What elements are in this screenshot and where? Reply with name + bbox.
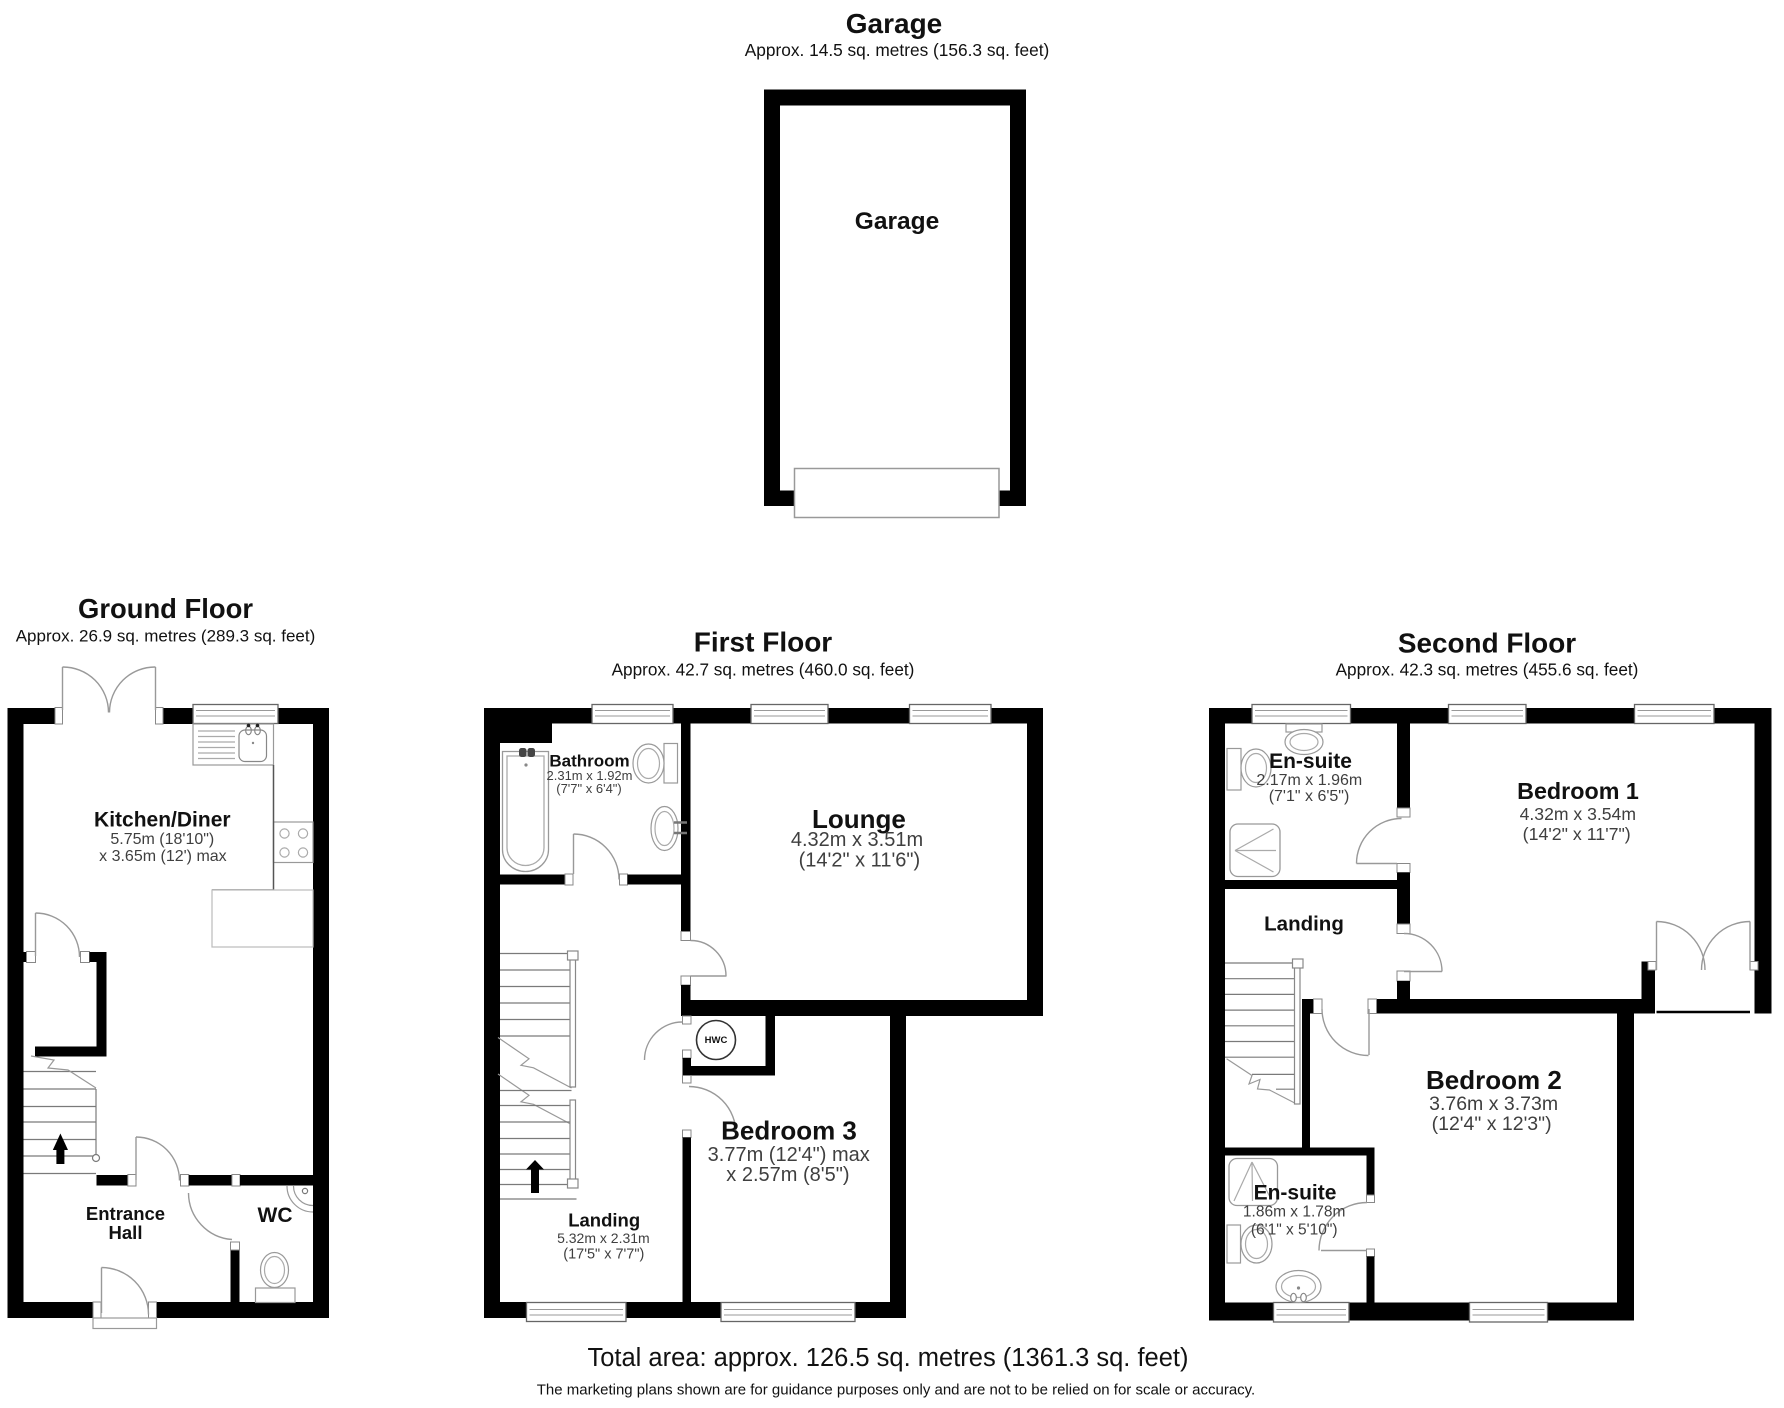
svg-text:5.75m (18'10"): 5.75m (18'10") — [110, 831, 214, 848]
svg-text:(7'1" x 6'5"): (7'1" x 6'5") — [1269, 788, 1350, 805]
svg-text:Approx. 42.7 sq. metres (460.0: Approx. 42.7 sq. metres (460.0 sq. feet) — [612, 660, 915, 680]
svg-text:Bedroom 2: Bedroom 2 — [1426, 1065, 1562, 1095]
svg-text:(14'2" x 11'7"): (14'2" x 11'7") — [1523, 824, 1631, 844]
svg-text:Landing: Landing — [1264, 913, 1344, 936]
svg-text:3.76m x 3.73m: 3.76m x 3.73m — [1429, 1093, 1558, 1115]
svg-text:Second Floor: Second Floor — [1398, 628, 1576, 659]
svg-text:(14'2" x 11'6"): (14'2" x 11'6") — [799, 850, 921, 872]
svg-text:Hall: Hall — [109, 1222, 143, 1243]
svg-text:Kitchen/Diner: Kitchen/Diner — [94, 809, 231, 832]
svg-text:2.17m x 1.96m: 2.17m x 1.96m — [1256, 772, 1362, 789]
svg-text:En-suite: En-suite — [1254, 1182, 1337, 1205]
svg-text:Entrance: Entrance — [86, 1203, 165, 1224]
svg-text:Garage: Garage — [846, 8, 943, 39]
svg-text:HWC: HWC — [705, 1035, 728, 1046]
svg-text:Total area: approx. 126.5 sq.: Total area: approx. 126.5 sq. metres (13… — [587, 1344, 1188, 1372]
svg-text:x 2.57m (8'5"): x 2.57m (8'5") — [726, 1164, 849, 1186]
svg-text:1.86m x 1.78m: 1.86m x 1.78m — [1243, 1204, 1346, 1221]
svg-text:First Floor: First Floor — [694, 627, 833, 658]
svg-text:4.32m x 3.54m: 4.32m x 3.54m — [1520, 804, 1636, 824]
svg-text:The marketing plans shown are: The marketing plans shown are for guidan… — [537, 1382, 1255, 1399]
svg-text:Bedroom 3: Bedroom 3 — [721, 1116, 857, 1146]
svg-text:Approx. 26.9 sq. metres (289.3: Approx. 26.9 sq. metres (289.3 sq. feet) — [16, 627, 316, 646]
svg-text:5.32m x 2.31m: 5.32m x 2.31m — [557, 1230, 650, 1246]
svg-text:(17'5" x 7'7"): (17'5" x 7'7") — [563, 1247, 644, 1263]
svg-text:3.77m (12'4") max: 3.77m (12'4") max — [708, 1144, 870, 1166]
svg-text:Ground Floor: Ground Floor — [78, 593, 253, 624]
svg-text:Bedroom 1: Bedroom 1 — [1517, 778, 1639, 804]
svg-text:4.32m x 3.51m: 4.32m x 3.51m — [791, 829, 923, 851]
svg-text:Garage: Garage — [855, 208, 939, 235]
svg-text:En-suite: En-suite — [1269, 750, 1352, 773]
svg-text:(12'4" x 12'3"): (12'4" x 12'3") — [1432, 1113, 1552, 1135]
svg-text:WC: WC — [258, 1204, 293, 1227]
svg-text:Approx. 42.3 sq. metres (455.6: Approx. 42.3 sq. metres (455.6 sq. feet) — [1336, 660, 1639, 680]
svg-text:Approx. 14.5 sq. metres (156.3: Approx. 14.5 sq. metres (156.3 sq. feet) — [745, 40, 1050, 60]
svg-text:x 3.65m (12') max: x 3.65m (12') max — [99, 848, 227, 865]
svg-text:(7'7" x 6'4"): (7'7" x 6'4") — [556, 781, 622, 796]
svg-text:Landing: Landing — [568, 1210, 640, 1231]
svg-text:(6'1" x 5'10"): (6'1" x 5'10") — [1251, 1222, 1338, 1239]
